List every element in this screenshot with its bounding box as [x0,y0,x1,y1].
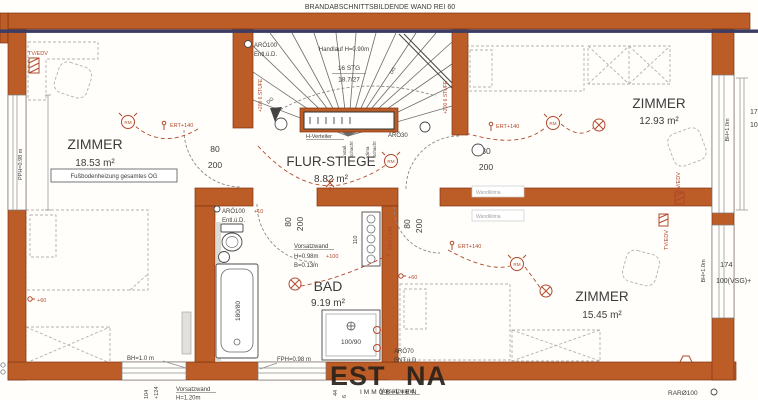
shower-fixture: 100/90 [322,310,381,360]
room-name-left: ZIMMER [67,136,122,152]
newel-post [472,144,484,156]
room-area-bad: 9.19 m² [311,298,346,309]
room-area-left: 18.53 m² [75,158,115,169]
svg-text:RM: RM [549,121,556,126]
tv-label: TV/EDV [664,230,670,250]
wc-fixture [221,224,243,251]
svg-text:RM: RM [387,159,394,164]
door-size: 200 [414,219,424,233]
door-size: 80 [210,144,220,154]
room-name-flur: FLUR-STIEGE [286,154,375,169]
stair-steps-label: 16 STG [338,65,360,72]
stair-duct-label: ARÖ100 [254,42,278,49]
window-label: BH=1.0m [701,259,707,282]
duct-circle [420,122,430,132]
room-name-bottom-right: ZIMMER [575,289,628,304]
dim-width: 174 [720,260,733,269]
room-area-top-right: 12.93 m² [639,116,679,127]
ert-label: ERT+140 [496,124,519,130]
chimney-block [182,312,191,354]
window-label: BH=1.0m [725,118,731,141]
shower-size: 100/90 [341,339,361,346]
newel-post [275,118,287,130]
bathtub-fixture: 180/80 [216,264,258,358]
door-size: 80 [402,219,412,229]
level-mark: +124 [154,387,160,399]
h-verteiler-label: H-Verteiler [306,134,332,140]
stair-level-right: +200 6.STUFE [443,80,449,114]
logo-square [389,367,402,380]
stair-rise-label: 18.7/27 [338,77,360,84]
room-name-top-right: ZIMMER [632,96,685,111]
svg-text:Vorsatzwand: Vorsatzwand [294,244,328,250]
window-label: BH=1.0 m [127,356,154,362]
tub-size: 180/80 [235,301,242,321]
svg-text:RM: RM [513,262,520,267]
svg-text:B=0.13m: B=0.13m [294,263,318,269]
ac-label: Wandklima [476,214,501,220]
ert-label: ERT+140 [458,244,481,250]
logo-text-left: EST [330,361,386,391]
svg-text:Fußbodenheizung gesamtes OG: Fußbodenheizung gesamtes OG [70,174,157,180]
vorsatzwand-label: Vorsatzwand [176,387,210,393]
svg-text:H=0.98m: H=0.98m [294,254,319,260]
ert-label: ERT+140 [170,123,193,129]
fire-section-line [0,30,758,33]
svg-text:RM: RM [124,120,131,125]
dim-glass: 100(VSG)+ [716,278,751,285]
ac-label: Wandklima [476,190,501,196]
level-mark: 104 [144,390,150,399]
dim-glass-clipped: 100(VSG) [750,122,758,129]
logo-text-right: NA [406,361,447,391]
floor-heating-note: Fußbodenheizung gesamtes OG [51,169,177,182]
vorsatzwand-height: H=1.20m [176,396,201,400]
duct-circle [214,206,220,212]
flur-duct-label: ARÖ30 [388,132,408,139]
dim-width-clipped: 174 [750,109,758,116]
ert-label: ERT+140 [388,227,394,250]
window-left: PPH=0.98 m [8,95,26,210]
stair-duct-note: Entl.ü.D. [254,52,277,58]
door-size: 200 [295,217,305,231]
tv-label: TV/EDV [676,172,682,192]
bad-duct-note: Entl.ü.D. [222,218,245,224]
window-label: FPH=0.98 m [277,357,311,363]
radiator-level: +100 [326,254,338,260]
socket-level: +60 [37,298,46,304]
duct-circle [245,41,252,48]
bad-duct-level: +10 [254,209,263,215]
door-size: 200 [208,160,222,170]
sink-fixture [219,252,230,263]
logo-subtitle: IMMOBILIEN [360,389,418,396]
room-area-bottom-right: 15.45 m² [582,310,622,321]
handrail-label: Handlauf H=0.90m [319,47,369,53]
shower-duct-label: ARÖ70 [394,348,414,355]
roof-duct-label: RARØ100 [668,390,698,397]
window-label: PPH=0.98 m [18,148,24,180]
stair-level-left: +200 6.STUFE [258,78,264,112]
socket-level: +60 [408,275,417,281]
radiator-size: 110 [353,236,359,245]
door-size: 200 [479,162,493,172]
fire-wall-note: BRANDABSCHNITTSBILDENDE WAND REI 60 [305,4,455,11]
floor-plan: BRANDABSCHNITTSBILDENDE WAND REI 60 [0,0,758,400]
bad-duct: ARÖ100 [222,208,246,215]
room-name-bad: BAD [314,278,343,294]
room-area-flur: 8.82 m² [314,174,349,185]
duct-circle [711,389,717,395]
floor-plan-svg: BRANDABSCHNITTSBILDENDE WAND REI 60 [0,0,758,400]
door-size: 80 [283,217,293,227]
tv-label: TV/EDV [28,51,48,57]
level-mark: 6 [342,395,348,398]
